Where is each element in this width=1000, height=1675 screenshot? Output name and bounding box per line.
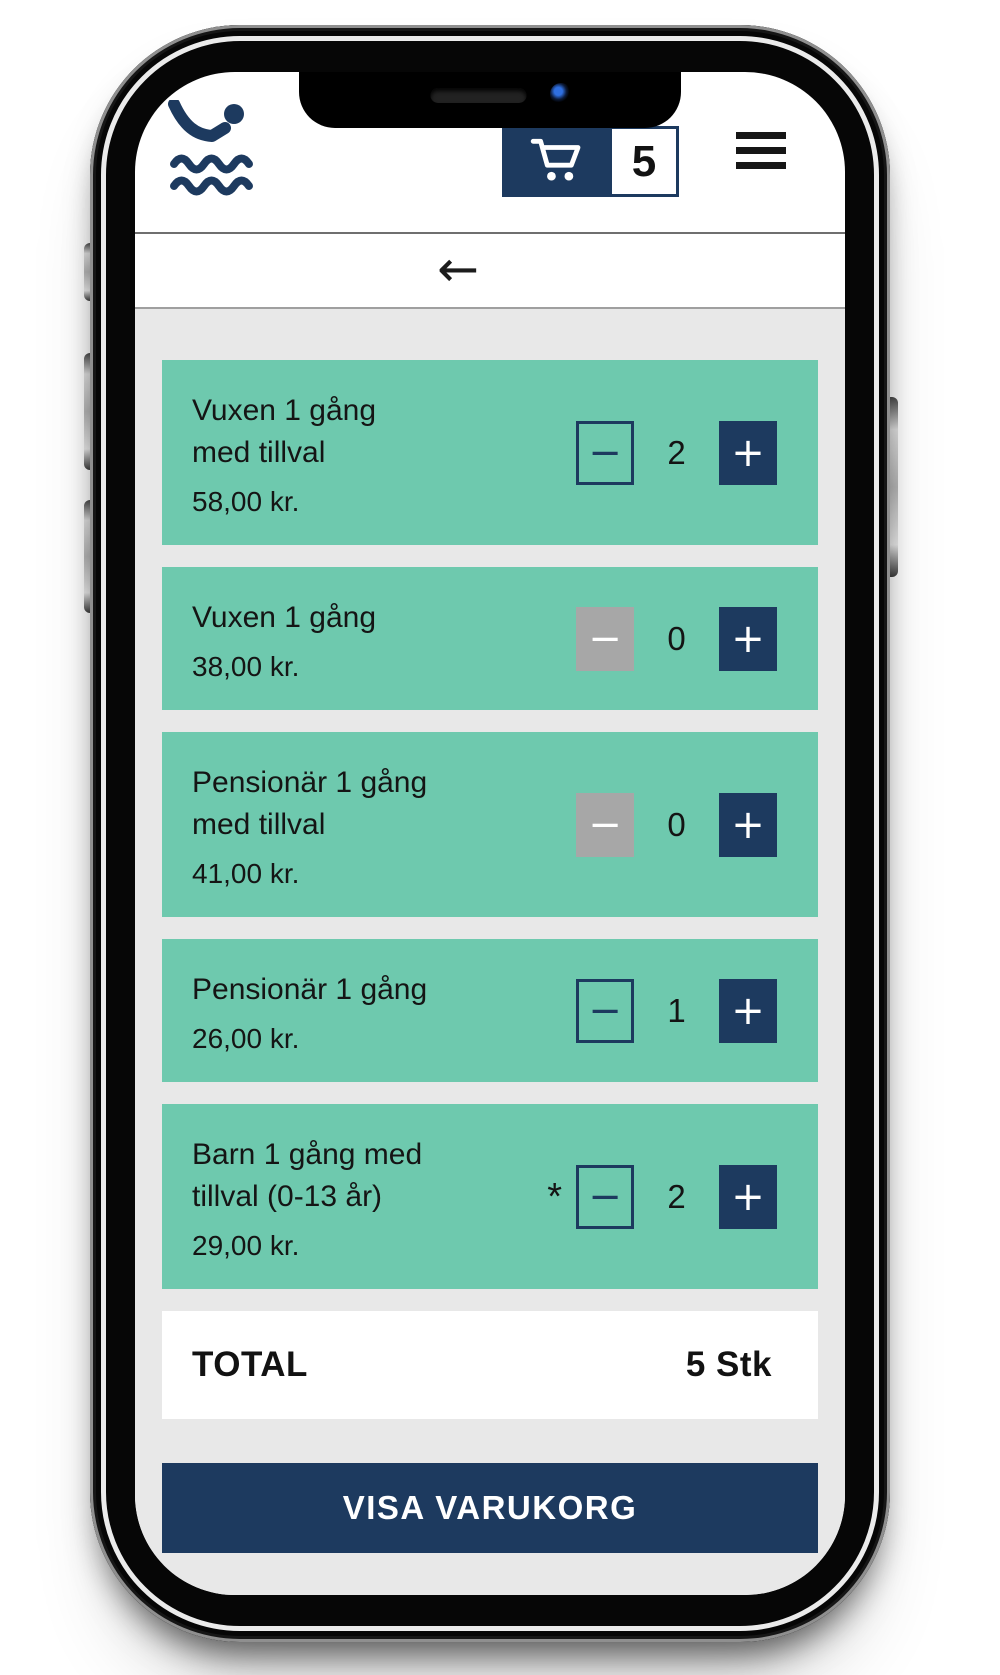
total-row: TOTAL 5 Stk — [162, 1311, 818, 1419]
front-camera-icon — [550, 83, 572, 105]
decrease-quantity-button[interactable]: − — [576, 979, 634, 1043]
quantity-value: 2 — [634, 1178, 719, 1216]
quantity-stepper: − 2 + — [576, 421, 777, 485]
ticket-card: Pensionär 1 gång 26,00 kr. − 1 + — [162, 939, 818, 1082]
quantity-value: 2 — [634, 434, 719, 472]
decrease-quantity-button[interactable]: − — [576, 607, 634, 671]
decrease-quantity-button[interactable]: − — [576, 1165, 634, 1229]
total-value: 5 Stk — [686, 1345, 772, 1385]
increase-quantity-button[interactable]: + — [719, 607, 777, 671]
phone-frame: 5 ← Vuxen 1 gång med tillval 58,00 kr. − — [90, 25, 890, 1642]
ticket-title: Pensionär 1 gång med tillval — [192, 762, 437, 846]
quantity-stepper: − 0 + — [576, 607, 777, 671]
decrease-quantity-button[interactable]: − — [576, 793, 634, 857]
ticket-card: Vuxen 1 gång 38,00 kr. − 0 + — [162, 567, 818, 710]
back-arrow-icon[interactable]: ← — [431, 242, 485, 294]
show-cart-button[interactable]: VISA VARUKORG — [162, 1463, 818, 1553]
cart-count-badge: 5 — [609, 126, 679, 197]
ticket-card: Barn 1 gång med tillval (0-13 år) 29,00 … — [162, 1104, 818, 1289]
quantity-value: 1 — [634, 992, 719, 1030]
quantity-value: 0 — [634, 620, 719, 658]
ticket-price: 29,00 kr. — [192, 1230, 788, 1262]
back-navigation-bar: ← — [135, 232, 845, 309]
hamburger-icon — [736, 132, 786, 139]
ticket-card: Pensionär 1 gång med tillval 41,00 kr. −… — [162, 732, 818, 917]
ticket-list: Vuxen 1 gång med tillval 58,00 kr. − 2 +… — [135, 309, 845, 1595]
ticket-title: Vuxen 1 gång med tillval — [192, 390, 437, 474]
cart-widget: 5 — [502, 126, 679, 197]
phone-screen: 5 ← Vuxen 1 gång med tillval 58,00 kr. − — [135, 72, 845, 1595]
cart-button[interactable] — [502, 126, 609, 197]
page: 5 ← Vuxen 1 gång med tillval 58,00 kr. − — [0, 0, 1000, 1675]
quantity-value: 0 — [634, 806, 719, 844]
increase-quantity-button[interactable]: + — [719, 793, 777, 857]
ticket-title: Barn 1 gång med tillval (0-13 år) — [192, 1134, 437, 1218]
swimmer-logo-icon — [168, 100, 260, 200]
quantity-stepper: − 1 + — [576, 979, 777, 1043]
cart-icon — [529, 135, 583, 188]
ticket-price: 58,00 kr. — [192, 486, 788, 518]
quantity-stepper: * − 2 + — [547, 1165, 777, 1229]
required-asterisk: * — [547, 1178, 562, 1216]
quantity-stepper: − 0 + — [576, 793, 777, 857]
total-label: TOTAL — [192, 1345, 308, 1385]
hamburger-icon — [736, 147, 786, 154]
decrease-quantity-button[interactable]: − — [576, 421, 634, 485]
ticket-title: Vuxen 1 gång — [192, 597, 437, 639]
ticket-price: 41,00 kr. — [192, 858, 788, 890]
increase-quantity-button[interactable]: + — [719, 979, 777, 1043]
increase-quantity-button[interactable]: + — [719, 1165, 777, 1229]
hamburger-icon — [736, 162, 786, 169]
notch — [299, 72, 681, 128]
hamburger-menu-button[interactable] — [736, 132, 786, 169]
ticket-title: Pensionär 1 gång — [192, 969, 437, 1011]
speaker-grille-icon — [430, 88, 526, 103]
ticket-card: Vuxen 1 gång med tillval 58,00 kr. − 2 + — [162, 360, 818, 545]
increase-quantity-button[interactable]: + — [719, 421, 777, 485]
